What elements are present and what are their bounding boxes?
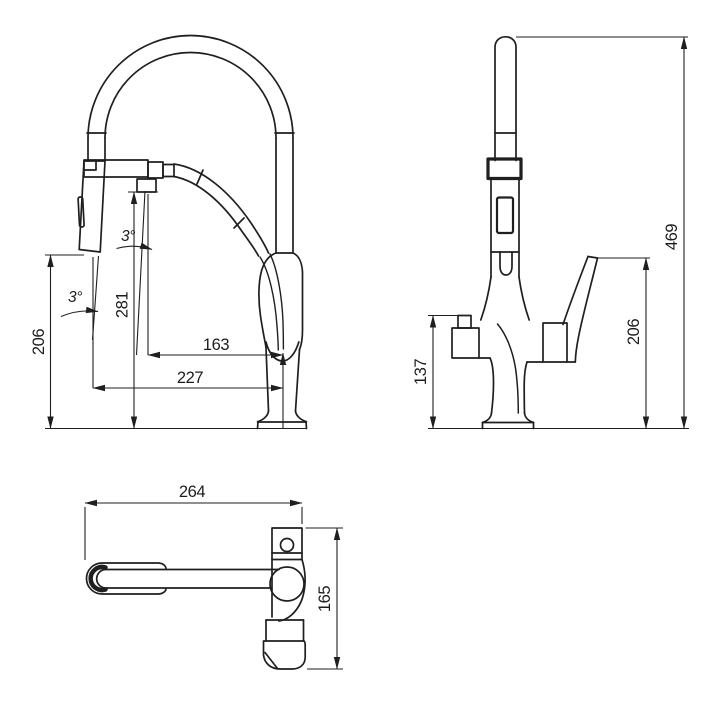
- top-body: [264, 528, 306, 669]
- dim-label-front-spout-height: 281: [114, 292, 132, 319]
- dim-label-front-spray-height: 206: [30, 329, 48, 356]
- side-dimensions: [428, 37, 689, 429]
- dim-label-side-handle-height: 206: [625, 319, 643, 346]
- dim-label-front-spray-reach: 227: [177, 369, 204, 387]
- side-outlet-block: [452, 328, 479, 358]
- top-mounting-hole: [281, 539, 294, 552]
- side-dimension-labels: 469 206 137: [412, 224, 681, 386]
- dim-label-front-spout-angle: 3°: [121, 228, 135, 245]
- dim-label-front-spray-angle: 3°: [68, 289, 82, 306]
- side-hose-collar: [488, 159, 521, 179]
- side-spray-switch-window: [497, 198, 513, 234]
- side-body: [452, 316, 575, 429]
- side-spray-wand: [481, 37, 529, 320]
- faucet-dimension-drawing: 206 281 163 227 3° 3°: [0, 0, 720, 704]
- dim-label-top-length: 264: [179, 483, 206, 501]
- top-view: 264 165: [85, 483, 343, 669]
- top-swivel-joint: [270, 567, 304, 601]
- dim-label-front-spout-reach: 163: [203, 336, 230, 354]
- top-handle: [264, 641, 306, 669]
- front-body: [258, 253, 307, 429]
- side-outlet-tab: [458, 316, 471, 329]
- dim-label-top-depth: 165: [316, 586, 334, 613]
- front-view: 206 281 163 227 3° 3°: [30, 36, 307, 429]
- side-handle-block: [543, 323, 567, 362]
- dim-label-side-overall-height: 469: [663, 224, 681, 251]
- front-dimension-labels: 206 281 163 227 3° 3°: [30, 228, 229, 387]
- side-view: 469 206 137: [412, 37, 689, 429]
- front-hose: [174, 164, 269, 256]
- top-dimension-labels: 264 165: [179, 483, 334, 612]
- side-handle-lever: [563, 257, 598, 363]
- technical-drawing-canvas: 206 281 163 227 3° 3°: [0, 0, 720, 704]
- front-spout-arch: [87, 36, 294, 253]
- dim-label-side-outlet-height: 137: [412, 359, 430, 386]
